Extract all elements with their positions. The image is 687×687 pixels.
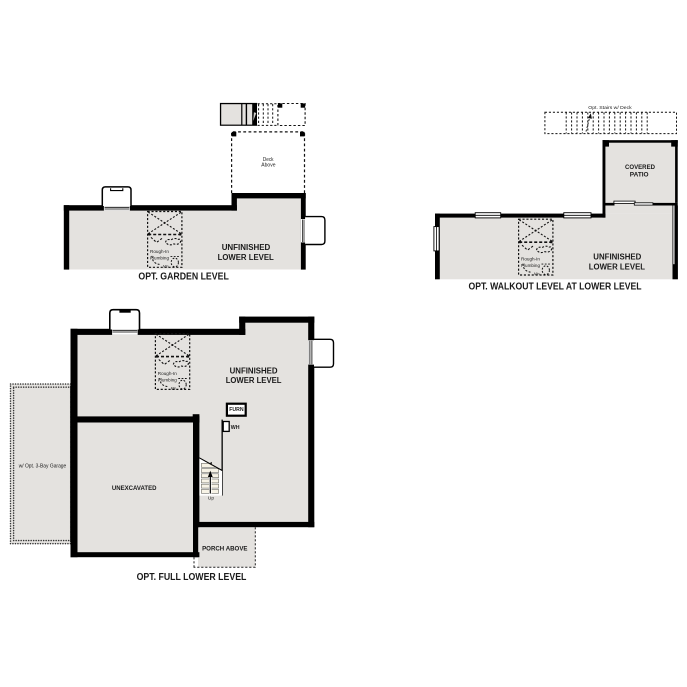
svg-text:COVERED: COVERED — [625, 164, 656, 171]
svg-text:OPT. WALKOUT LEVEL AT LOWER LE: OPT. WALKOUT LEVEL AT LOWER LEVEL — [469, 281, 642, 292]
svg-text:Opt. Stairs w/ Deck: Opt. Stairs w/ Deck — [588, 105, 632, 110]
svg-text:LOWER LEVEL: LOWER LEVEL — [589, 263, 645, 272]
svg-text:OPT. FULL LOWER LEVEL: OPT. FULL LOWER LEVEL — [137, 572, 247, 583]
svg-text:FURN: FURN — [229, 407, 244, 413]
svg-text:Up: Up — [208, 496, 214, 502]
svg-text:LOWER LEVEL: LOWER LEVEL — [218, 253, 274, 262]
svg-text:Above: Above — [261, 162, 275, 168]
svg-text:UNEXCAVATED: UNEXCAVATED — [112, 485, 157, 492]
svg-text:UNFINISHED: UNFINISHED — [593, 253, 641, 262]
svg-text:PATIO: PATIO — [630, 172, 649, 179]
svg-text:PORCH ABOVE: PORCH ABOVE — [202, 545, 247, 552]
svg-text:UNFINISHED: UNFINISHED — [230, 366, 278, 375]
svg-text:w/ Opt. 3-Bay Garage: w/ Opt. 3-Bay Garage — [19, 463, 67, 469]
svg-text:OPT. GARDEN LEVEL: OPT. GARDEN LEVEL — [138, 272, 228, 283]
svg-text:WH: WH — [231, 425, 240, 431]
svg-text:UNFINISHED: UNFINISHED — [222, 243, 271, 252]
svg-text:LOWER LEVEL: LOWER LEVEL — [226, 376, 282, 385]
